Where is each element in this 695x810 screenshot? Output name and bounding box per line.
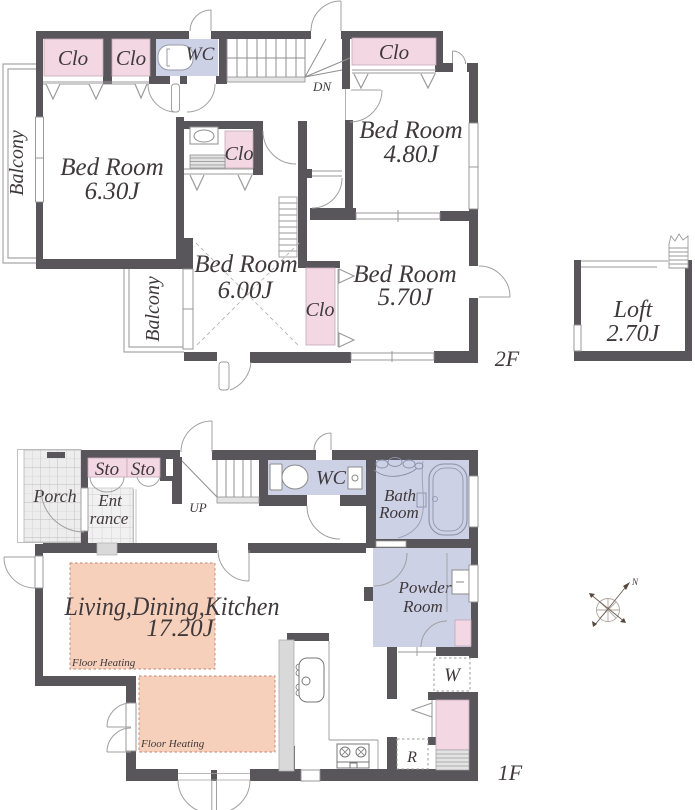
svg-text:Clo: Clo	[306, 299, 335, 321]
svg-text:Porch: Porch	[32, 486, 76, 506]
svg-text:Room: Room	[378, 503, 419, 522]
svg-text:6.30J: 6.30J	[85, 178, 142, 205]
svg-text:Clo: Clo	[116, 46, 146, 70]
svg-text:6.00J: 6.00J	[218, 277, 275, 304]
svg-text:5.70J: 5.70J	[378, 284, 435, 311]
svg-text:Balcony: Balcony	[142, 276, 164, 342]
svg-text:N: N	[631, 577, 639, 587]
svg-text:Clo: Clo	[58, 46, 88, 70]
svg-text:Ent: Ent	[97, 491, 123, 510]
svg-text:Sto: Sto	[95, 459, 119, 480]
svg-text:2.70J: 2.70J	[607, 321, 661, 347]
svg-text:Bed Room: Bed Room	[60, 154, 163, 181]
svg-text:Powder: Powder	[398, 578, 452, 597]
svg-text:R: R	[406, 749, 417, 766]
svg-text:Bed Room: Bed Room	[359, 117, 462, 144]
svg-text:Loft: Loft	[613, 297, 654, 323]
svg-text:DN: DN	[312, 79, 332, 94]
svg-text:2F: 2F	[495, 346, 520, 371]
svg-text:17.20J: 17.20J	[146, 615, 215, 642]
svg-text:UP: UP	[189, 500, 206, 515]
svg-text:WC: WC	[316, 467, 347, 489]
svg-text:1F: 1F	[498, 760, 523, 785]
svg-text:Floor Heating: Floor Heating	[140, 738, 205, 750]
svg-text:Clo: Clo	[225, 143, 254, 165]
svg-text:W: W	[444, 665, 462, 686]
svg-text:Sto: Sto	[131, 459, 155, 480]
svg-text:Floor Heating: Floor Heating	[71, 657, 136, 669]
svg-text:Bed Room: Bed Room	[194, 251, 297, 278]
svg-text:Room: Room	[402, 597, 443, 616]
svg-text:Balcony: Balcony	[6, 130, 28, 196]
svg-text:4.80J: 4.80J	[384, 141, 441, 168]
svg-text:rance: rance	[90, 509, 129, 528]
svg-text:WC: WC	[186, 44, 215, 65]
svg-text:Clo: Clo	[379, 40, 409, 64]
